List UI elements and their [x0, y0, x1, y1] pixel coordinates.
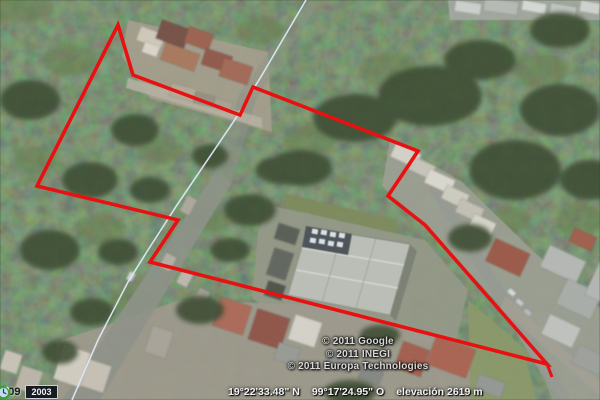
status-elevation: elevación 2619 m	[396, 386, 482, 398]
status-bar: 19°22'33.48" N 99°17'24.95" O elevación …	[228, 386, 483, 398]
status-longitude: 99°17'24.95" O	[312, 386, 384, 398]
map-overlays	[0, 0, 600, 400]
status-latitude: 19°22'33.48" N	[228, 386, 300, 398]
timeline-current-year-chip[interactable]: 2003	[25, 385, 57, 399]
property-outline[interactable]	[37, 25, 547, 364]
street-centerline	[72, 0, 306, 400]
map-canvas[interactable]: © 2011 Google © 2011 INEGI © 2011 Europa…	[0, 0, 600, 400]
historical-imagery-clock-icon[interactable]	[0, 385, 11, 400]
timeline-indicator: 2009 2003	[0, 385, 58, 399]
